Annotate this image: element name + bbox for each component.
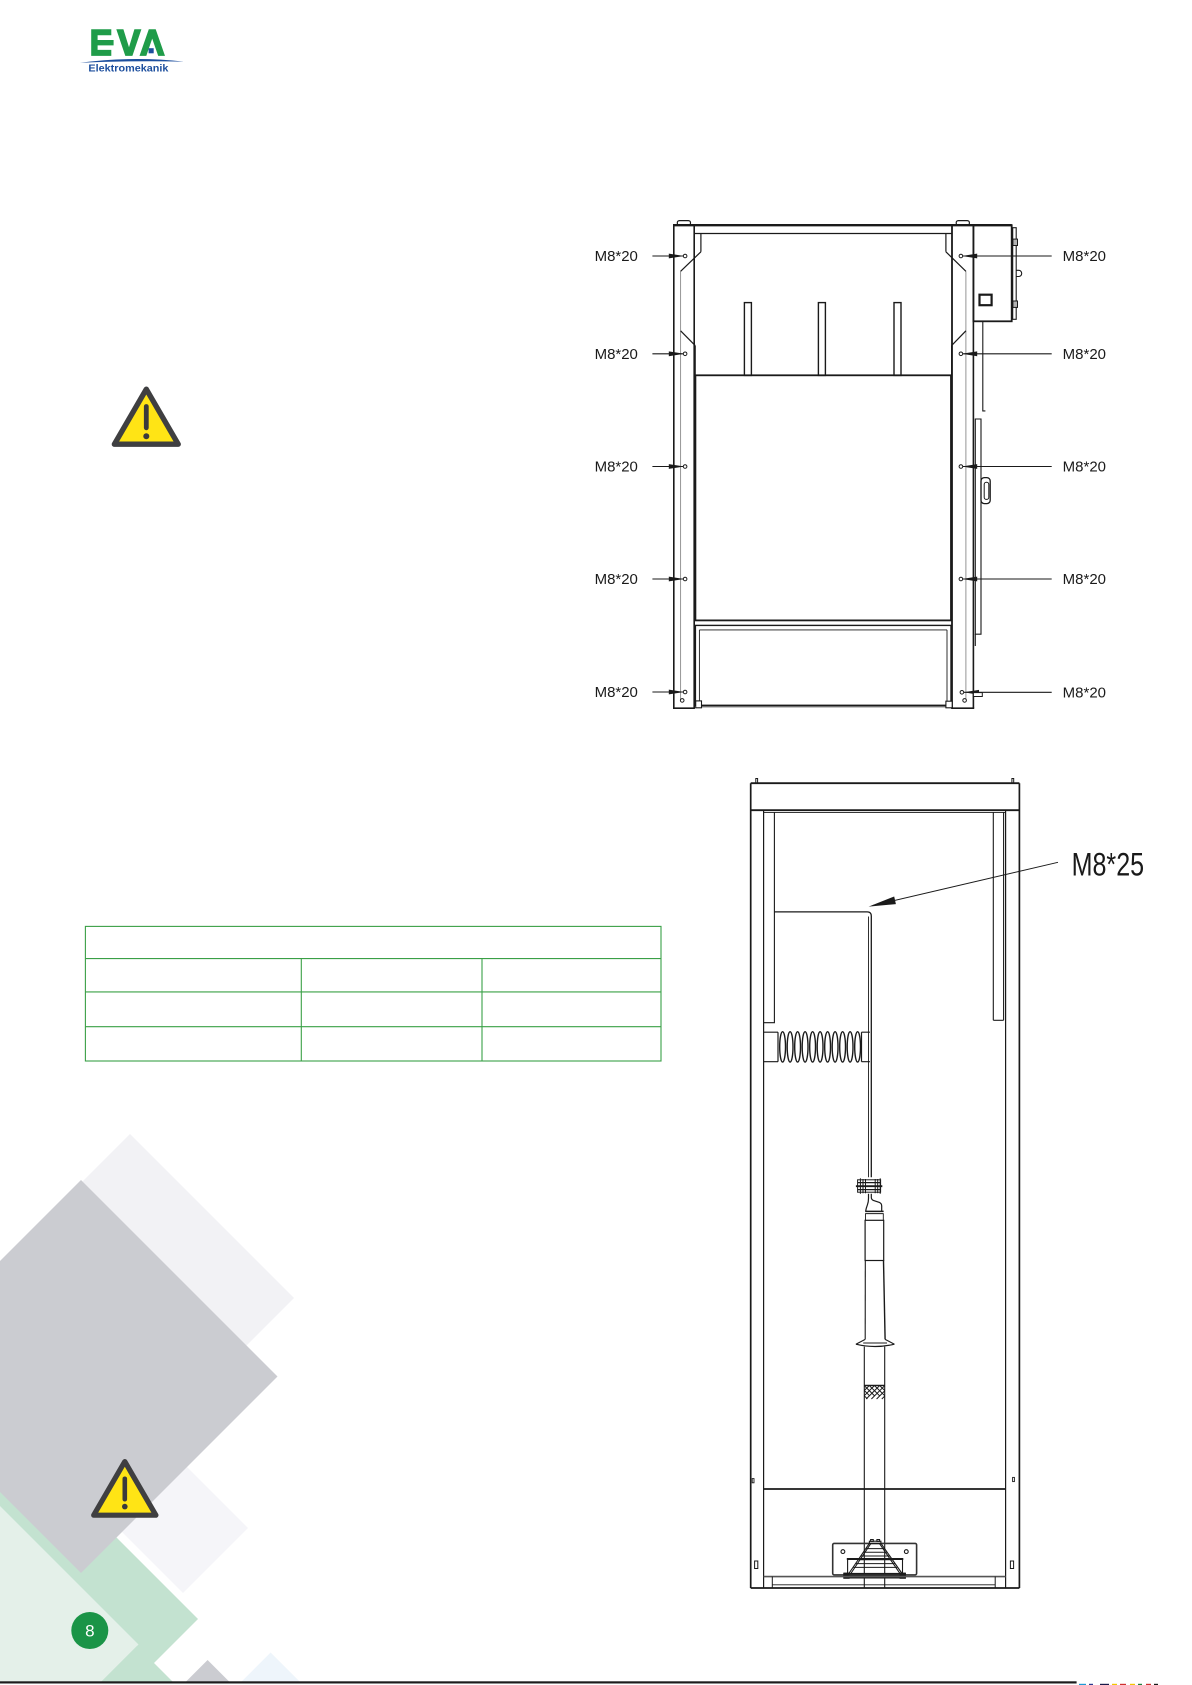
svg-text:M8*20: M8*20 xyxy=(1063,572,1106,588)
svg-text:M8*20: M8*20 xyxy=(595,347,638,363)
svg-text:Elektromekanik: Elektromekanik xyxy=(88,64,168,75)
svg-text:M8*20: M8*20 xyxy=(1063,249,1106,265)
svg-text:M8*25: M8*25 xyxy=(1072,847,1145,883)
svg-text:M8*20: M8*20 xyxy=(1063,347,1106,363)
svg-text:M8*20: M8*20 xyxy=(1063,460,1106,476)
svg-text:M8*20: M8*20 xyxy=(595,249,638,265)
svg-text:M8*20: M8*20 xyxy=(595,685,638,701)
svg-text:8: 8 xyxy=(85,1622,94,1641)
svg-text:M8*20: M8*20 xyxy=(595,572,638,588)
svg-text:M8*20: M8*20 xyxy=(595,460,638,476)
svg-text:M8*20: M8*20 xyxy=(1063,685,1106,701)
